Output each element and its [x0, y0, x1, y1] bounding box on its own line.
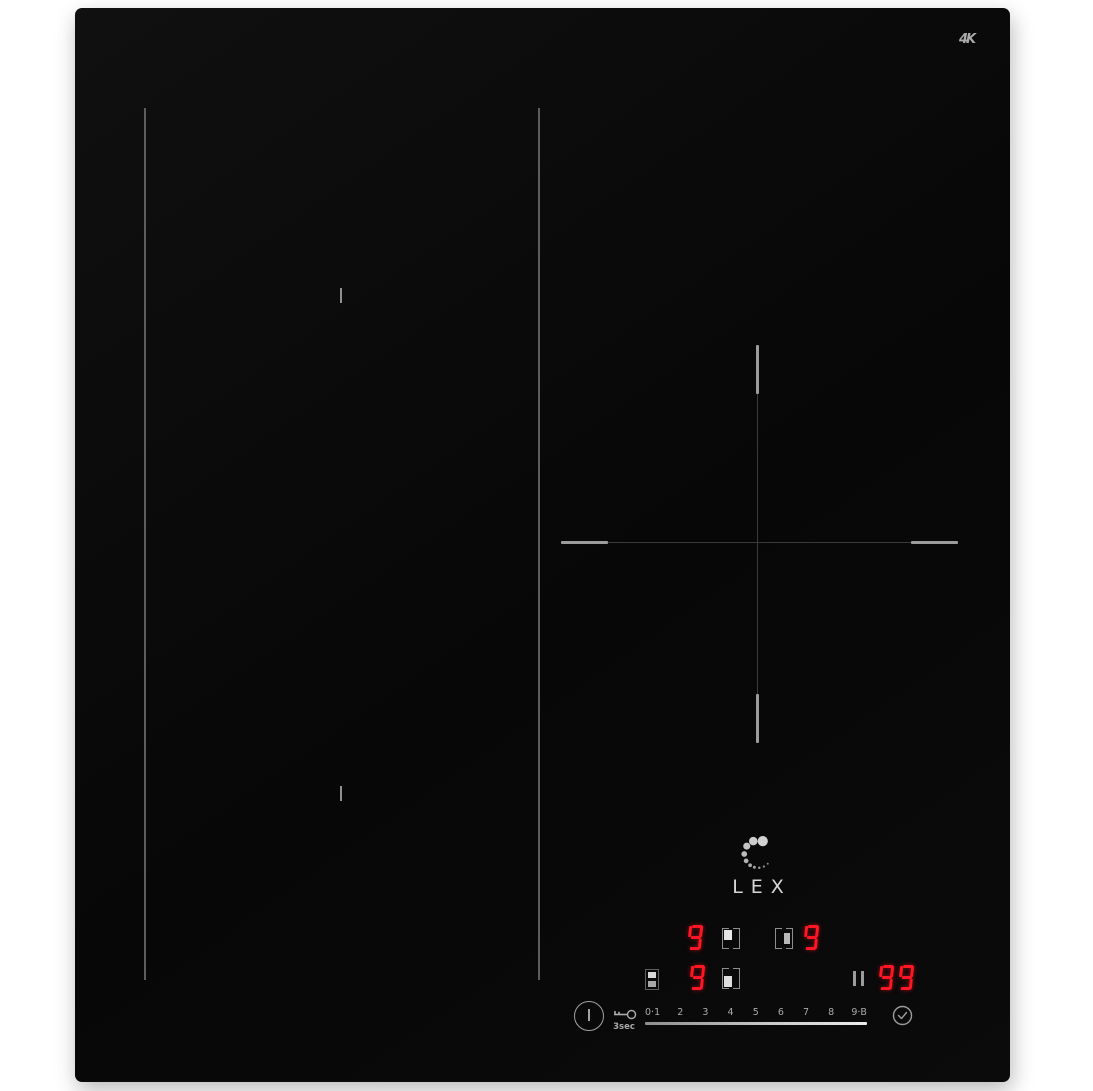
brand-logo: LEX	[708, 834, 808, 898]
power-slider-labels: 0·1 2 3 4 5 6 7 8 9·B	[645, 1007, 867, 1019]
pause-icon[interactable]	[853, 971, 864, 986]
bridge-zones-icon[interactable]	[645, 969, 659, 990]
slider-label-9-b[interactable]: 9·B	[851, 1007, 867, 1019]
zone-cross-left-segment	[561, 541, 608, 544]
slider-label-3[interactable]: 3	[700, 1007, 710, 1019]
slider-label-6[interactable]: 6	[776, 1007, 786, 1019]
key-icon	[610, 1008, 638, 1021]
power-button[interactable]	[574, 1001, 604, 1031]
power-slider[interactable]: 0·1 2 3 4 5 6 7 8 9·B	[645, 1007, 867, 1025]
zone-cross-vertical	[757, 345, 758, 743]
brand-logo-text: LEX	[708, 876, 808, 898]
lock-button[interactable]: 3sec	[608, 1008, 640, 1032]
zone-a-level-display	[685, 925, 705, 950]
zone-cross-right-segment	[911, 541, 958, 544]
slider-label-8[interactable]: 8	[826, 1007, 836, 1019]
zone-cross-top-segment	[756, 345, 759, 394]
product-photo-stage: 4K LEX	[0, 0, 1093, 1091]
timer-button[interactable]	[889, 1002, 916, 1029]
slider-label-5[interactable]: 5	[751, 1007, 761, 1019]
power-slider-track[interactable]	[645, 1022, 867, 1025]
zone-select-bottom-left-icon[interactable]	[722, 968, 740, 989]
corner-mark: 4K	[959, 32, 974, 47]
zone-select-mid-right-icon[interactable]	[775, 928, 793, 949]
power-icon	[588, 1009, 590, 1021]
slider-label-2[interactable]: 2	[675, 1007, 685, 1019]
zone-cross-bottom-segment	[756, 694, 759, 743]
flex-zone-lower-tick	[340, 786, 342, 801]
zone-b-level-display	[801, 925, 821, 950]
flex-zone-left-line	[144, 108, 146, 980]
zone-cross-horizontal	[561, 542, 958, 543]
timer-display	[876, 965, 916, 990]
zone-select-top-left-icon[interactable]	[722, 928, 740, 949]
zone-c-level-display	[687, 965, 707, 990]
clock-icon	[889, 1002, 916, 1029]
flex-zone-upper-tick	[340, 288, 342, 303]
slider-label-7[interactable]: 7	[801, 1007, 811, 1019]
cooktop-surface: 4K LEX	[75, 8, 1010, 1082]
lock-hold-label: 3sec	[608, 1022, 640, 1032]
slider-label-4[interactable]: 4	[726, 1007, 736, 1019]
slider-label-0-1[interactable]: 0·1	[645, 1007, 660, 1019]
lex-dots-icon	[738, 834, 778, 874]
flex-zone-right-line	[538, 108, 540, 980]
